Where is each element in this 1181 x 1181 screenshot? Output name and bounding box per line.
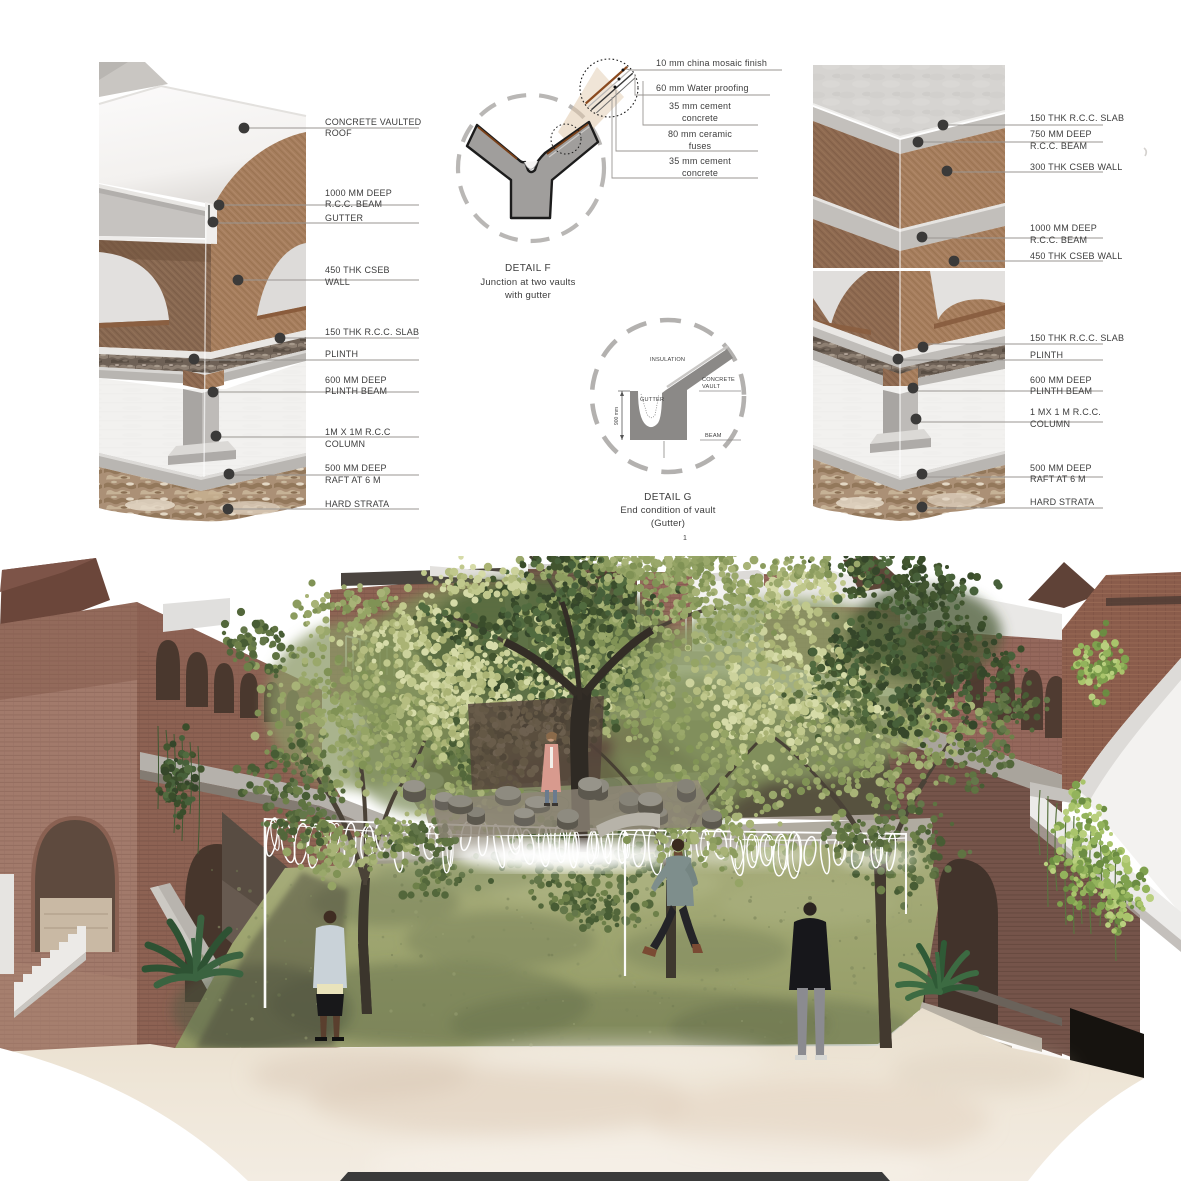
svg-text:with gutter: with gutter bbox=[504, 290, 551, 301]
svg-text:ROOF: ROOF bbox=[325, 128, 352, 138]
svg-text:1: 1 bbox=[683, 535, 687, 542]
svg-text:500 MM DEEP: 500 MM DEEP bbox=[1030, 463, 1092, 473]
svg-text:(Gutter): (Gutter) bbox=[651, 518, 685, 529]
svg-text:1 MX 1 M R.C.C.: 1 MX 1 M R.C.C. bbox=[1030, 407, 1101, 417]
svg-text:concrete: concrete bbox=[682, 168, 718, 178]
svg-text:600 MM DEEP: 600 MM DEEP bbox=[325, 375, 387, 385]
svg-text:INSULATION: INSULATION bbox=[650, 357, 685, 363]
svg-text:10 mm china mosaic finish: 10 mm china mosaic finish bbox=[656, 58, 767, 68]
svg-text:35 mm cement: 35 mm cement bbox=[669, 156, 731, 166]
svg-text:VAULT: VAULT bbox=[702, 384, 721, 390]
svg-text:900 mm: 900 mm bbox=[614, 407, 620, 425]
svg-text:COLUMN: COLUMN bbox=[325, 439, 365, 449]
svg-text:750 MM DEEP: 750 MM DEEP bbox=[1030, 129, 1092, 139]
svg-text:RAFT AT 6 M: RAFT AT 6 M bbox=[1030, 474, 1086, 484]
svg-text:450 THK CSEB: 450 THK CSEB bbox=[325, 265, 390, 275]
svg-text:HARD STRATA: HARD STRATA bbox=[1030, 497, 1094, 507]
svg-text:R.C.C. BEAM: R.C.C. BEAM bbox=[1030, 141, 1087, 151]
svg-text:GUTTER: GUTTER bbox=[640, 397, 664, 403]
svg-text:CONCRETE: CONCRETE bbox=[702, 377, 735, 383]
svg-text:PLINTH: PLINTH bbox=[325, 349, 358, 359]
svg-text:PLINTH BEAM: PLINTH BEAM bbox=[1030, 386, 1092, 396]
svg-text:150 THK R.C.C. SLAB: 150 THK R.C.C. SLAB bbox=[1030, 333, 1124, 343]
svg-text:Junction at two vaults: Junction at two vaults bbox=[480, 277, 575, 288]
svg-text:60 mm Water proofing: 60 mm Water proofing bbox=[656, 83, 749, 93]
svg-text:R.C.C. BEAM: R.C.C. BEAM bbox=[325, 199, 382, 209]
svg-text:80 mm ceramic: 80 mm ceramic bbox=[668, 129, 732, 139]
svg-text:600 MM DEEP: 600 MM DEEP bbox=[1030, 375, 1092, 385]
svg-text:150 THK R.C.C. SLAB: 150 THK R.C.C. SLAB bbox=[1030, 113, 1124, 123]
svg-text:1000 MM DEEP: 1000 MM DEEP bbox=[1030, 223, 1097, 233]
svg-text:1M X 1M R.C.C: 1M X 1M R.C.C bbox=[325, 427, 391, 437]
svg-text:1000 MM DEEP: 1000 MM DEEP bbox=[325, 188, 392, 198]
svg-text:CONCRETE VAULTED: CONCRETE VAULTED bbox=[325, 117, 422, 127]
svg-text:150 THK R.C.C. SLAB: 150 THK R.C.C. SLAB bbox=[325, 327, 419, 337]
svg-text:500 MM DEEP: 500 MM DEEP bbox=[325, 463, 387, 473]
svg-text:WALL: WALL bbox=[325, 277, 350, 287]
svg-text:RAFT AT 6 M: RAFT AT 6 M bbox=[325, 475, 381, 485]
svg-text:fuses: fuses bbox=[689, 141, 712, 151]
svg-text:R.C.C. BEAM: R.C.C. BEAM bbox=[1030, 235, 1087, 245]
svg-text:300 THK CSEB WALL: 300 THK CSEB WALL bbox=[1030, 162, 1122, 172]
svg-text:COLUMN: COLUMN bbox=[1030, 419, 1070, 429]
svg-text:PLINTH: PLINTH bbox=[1030, 350, 1063, 360]
svg-text:concrete: concrete bbox=[682, 113, 718, 123]
svg-text:HARD STRATA: HARD STRATA bbox=[325, 499, 389, 509]
svg-text:GUTTER: GUTTER bbox=[325, 213, 363, 223]
svg-text:35 mm cement: 35 mm cement bbox=[669, 101, 731, 111]
svg-text:End condition of vault: End condition of vault bbox=[620, 505, 715, 516]
svg-text:DETAIL G: DETAIL G bbox=[644, 492, 692, 503]
svg-text:DETAIL F: DETAIL F bbox=[505, 263, 551, 274]
svg-text:450 THK CSEB WALL: 450 THK CSEB WALL bbox=[1030, 251, 1122, 261]
svg-text:BEAM: BEAM bbox=[705, 433, 722, 439]
svg-text:PLINTH BEAM: PLINTH BEAM bbox=[325, 386, 387, 396]
